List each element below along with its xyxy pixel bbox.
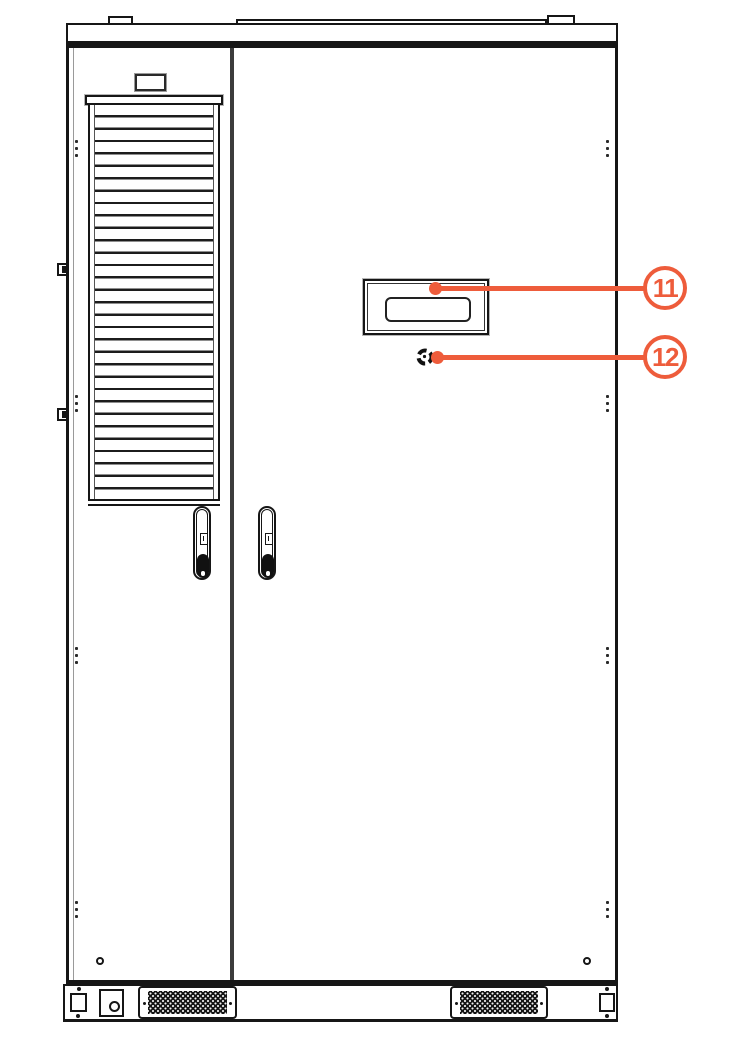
callout-12-leader-line [437,355,645,360]
rivet-dots-icon [606,901,609,922]
grille-mesh [148,991,227,1014]
foot-bolt-dot [605,987,609,991]
rivet-dots-icon [606,395,609,416]
louver-slats [94,105,214,499]
handle-grip [197,554,209,578]
rivet-dots-icon [75,647,78,668]
foot-bracket-icon [599,993,615,1012]
callout-11-anchor-dot [429,282,442,295]
callout-12-bubble: 12 [643,335,687,379]
grille-screw-dot [229,1002,232,1005]
door-handle-icon [258,506,276,580]
door-handle-icon [193,506,211,580]
junction-box [99,989,124,1017]
screw-icon [96,957,104,965]
keyhole-icon [200,533,208,545]
louver-top-cap [85,95,223,105]
grille-screw-dot [540,1002,543,1005]
vent-grille-icon [138,986,237,1019]
foot-bolt-dot [605,1014,609,1018]
door-divider [230,48,234,980]
louver-vent-icon [88,105,220,499]
keyhole-icon [265,533,273,545]
cabinet-top-rail [66,23,618,44]
grille-mesh [460,991,538,1014]
foot-bolt-dot [76,1014,80,1018]
rivet-dots-icon [606,140,609,161]
grille-screw-dot [143,1002,146,1005]
hinge-icon [57,408,68,421]
rivet-dots-icon [75,140,78,161]
rivet-dots-icon [75,901,78,922]
callout-11-number: 11 [653,275,678,301]
foot-bracket-icon [70,993,87,1012]
callout-11-bubble: 11 [643,266,687,310]
rivet-dots-icon [75,395,78,416]
equipment-front-view-diagram: 11 12 [0,0,747,1045]
handle-grip [262,554,274,578]
left-door-inner-edge [73,48,74,980]
display-screen-slot [385,297,471,322]
rivet-dots-icon [606,647,609,668]
hinge-icon [57,263,68,276]
callout-12-anchor-dot [431,351,444,364]
nameplate [135,74,166,91]
screw-icon [583,957,591,965]
louver-bottom-cap [88,499,220,506]
cable-hole-icon [109,1001,120,1012]
callout-11-leader-line [435,286,645,291]
vent-grille-icon [450,986,548,1019]
grille-screw-dot [455,1002,458,1005]
callout-12-number: 12 [652,344,678,370]
foot-bolt-dot [77,987,81,991]
